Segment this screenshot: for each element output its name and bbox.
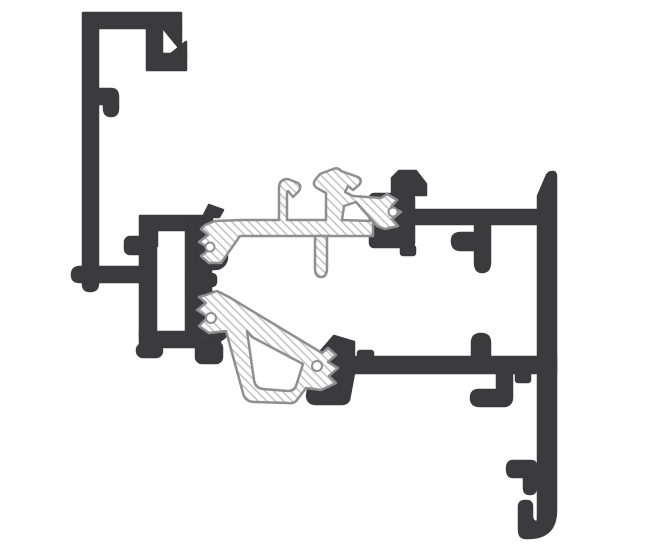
sash-bottom-nub xyxy=(516,373,530,382)
coupling-bottom-right-foot xyxy=(196,342,222,363)
sash-top-bar xyxy=(400,210,540,224)
gasket-hole-lower-left xyxy=(206,313,216,323)
cross-section-svg xyxy=(0,0,648,545)
insulating-strip-top-stem xyxy=(315,236,327,277)
coupling-left-wall xyxy=(140,239,156,337)
coupling-waist-tick xyxy=(202,274,216,286)
gasket-hole-lower-right xyxy=(312,361,322,371)
coupling-bottom-heel xyxy=(137,344,162,357)
gasket-hole-upper-left xyxy=(206,243,215,252)
gasket-hole-upper-right xyxy=(389,208,398,217)
sash-bottom-bar-step xyxy=(358,351,373,359)
sash-gasket-block-step xyxy=(401,246,415,255)
sash-bottom-finger xyxy=(472,334,490,357)
frame-bottom-foot xyxy=(72,267,147,282)
profile-cross-section-drawing xyxy=(0,0,648,545)
sash-bottom-bar xyxy=(350,357,556,373)
